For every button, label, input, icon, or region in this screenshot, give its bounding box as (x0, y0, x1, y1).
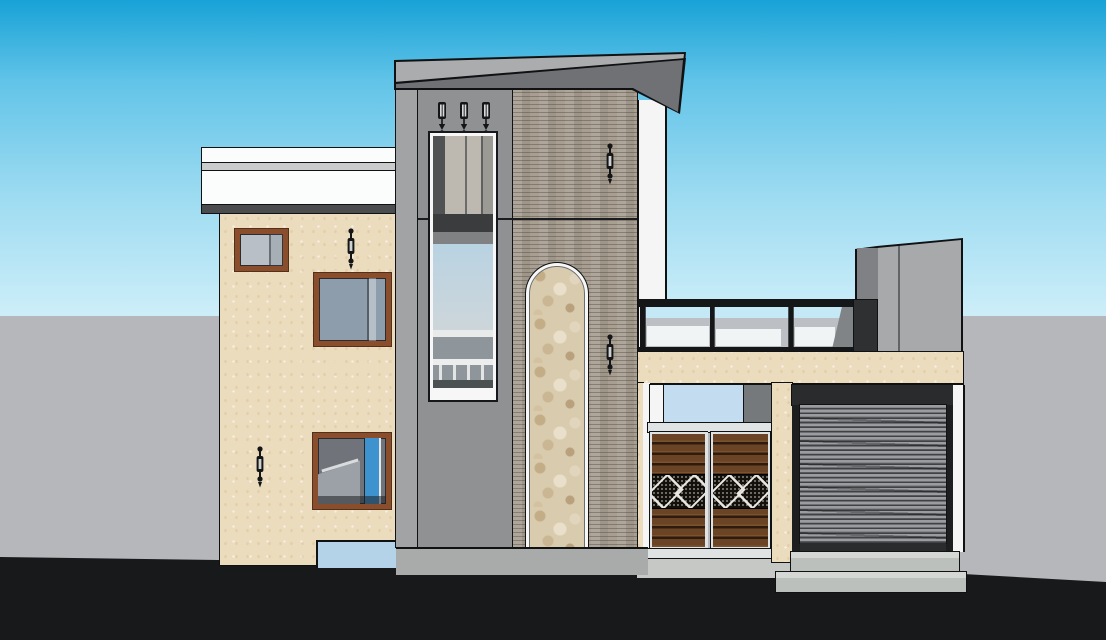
glass-shade (270, 234, 283, 266)
railing-glass-panel (793, 305, 854, 349)
glass-reflection (369, 278, 376, 341)
roller-shutter-curtain (800, 405, 946, 543)
downlight-icon (480, 101, 492, 135)
wall-sconce-icon (603, 143, 617, 187)
railing-bottom-rail (633, 347, 877, 351)
railing-glass-panel (714, 305, 789, 349)
gate-transom (650, 385, 772, 423)
parapet-behind-glass (647, 326, 709, 346)
stone-arch-panel (525, 262, 589, 547)
parapet-band-top (202, 148, 398, 163)
tower-plinth (396, 547, 648, 575)
parapet-ledge (202, 163, 398, 171)
wall-sconce-icon (603, 334, 617, 378)
transom-shade (743, 385, 773, 423)
louver-panel (433, 136, 493, 214)
shutter-channel (792, 405, 800, 552)
railing-corner-post (854, 300, 877, 352)
slab-band (433, 214, 493, 232)
railing-post (640, 302, 645, 350)
shutter-channel (946, 405, 953, 552)
gate-center-post (705, 432, 708, 549)
parapet-behind-glass (795, 327, 835, 346)
parapet-underside (202, 205, 398, 213)
tower-window-content (433, 136, 493, 397)
gate-ornament-band (652, 474, 705, 509)
ledge-band (433, 232, 493, 244)
gate-walkway (637, 558, 792, 578)
garage-jamb-white (953, 385, 965, 552)
diamond-ornament (736, 474, 768, 509)
window-square (314, 273, 391, 346)
downlight-icon (436, 101, 448, 135)
gate-ornament-band (713, 474, 768, 509)
railing-glass-panel (645, 305, 711, 349)
tower-side-face (396, 90, 418, 547)
gate-bottom-rail (648, 549, 774, 558)
railing-post (710, 302, 714, 350)
lower-shadow (433, 380, 493, 388)
stone-infill (530, 267, 584, 547)
parapet-band-bottom (202, 171, 398, 205)
window-glazing (433, 244, 493, 330)
fascia-band (633, 352, 963, 383)
tower-window (428, 131, 498, 402)
louver-divider (465, 136, 467, 214)
lower-glazing (433, 337, 493, 388)
shutter-bottom-bar (800, 543, 946, 552)
transom-glass (663, 385, 744, 423)
diamond-ornament (674, 474, 705, 509)
window-small (235, 229, 288, 271)
sill-shadow (318, 496, 386, 504)
garage-step (776, 572, 966, 592)
gate-top-rail (648, 423, 774, 432)
box-seam (898, 244, 900, 352)
railing-top-rail (633, 299, 877, 307)
gate-leaf (650, 432, 707, 549)
wall-sconce-icon (344, 228, 358, 272)
shutter-housing (792, 385, 963, 405)
box-shadow-slant (832, 307, 854, 349)
mid-sill (433, 330, 493, 337)
downlight-icon (458, 101, 470, 135)
garage-pillar-cream (772, 383, 792, 562)
railing-post (789, 302, 793, 350)
parapet-behind-glass (716, 329, 781, 346)
louver-shadow (433, 136, 445, 214)
window-stair (313, 433, 391, 509)
interior-rail-top (433, 359, 493, 365)
lower-opening (316, 540, 400, 568)
wall-sconce-icon (253, 446, 267, 490)
interior-blue-wall (364, 438, 381, 504)
louver-shade (481, 136, 493, 214)
elevation-render (0, 0, 1106, 640)
garage-step (791, 552, 959, 572)
gate-leaf (711, 432, 770, 549)
